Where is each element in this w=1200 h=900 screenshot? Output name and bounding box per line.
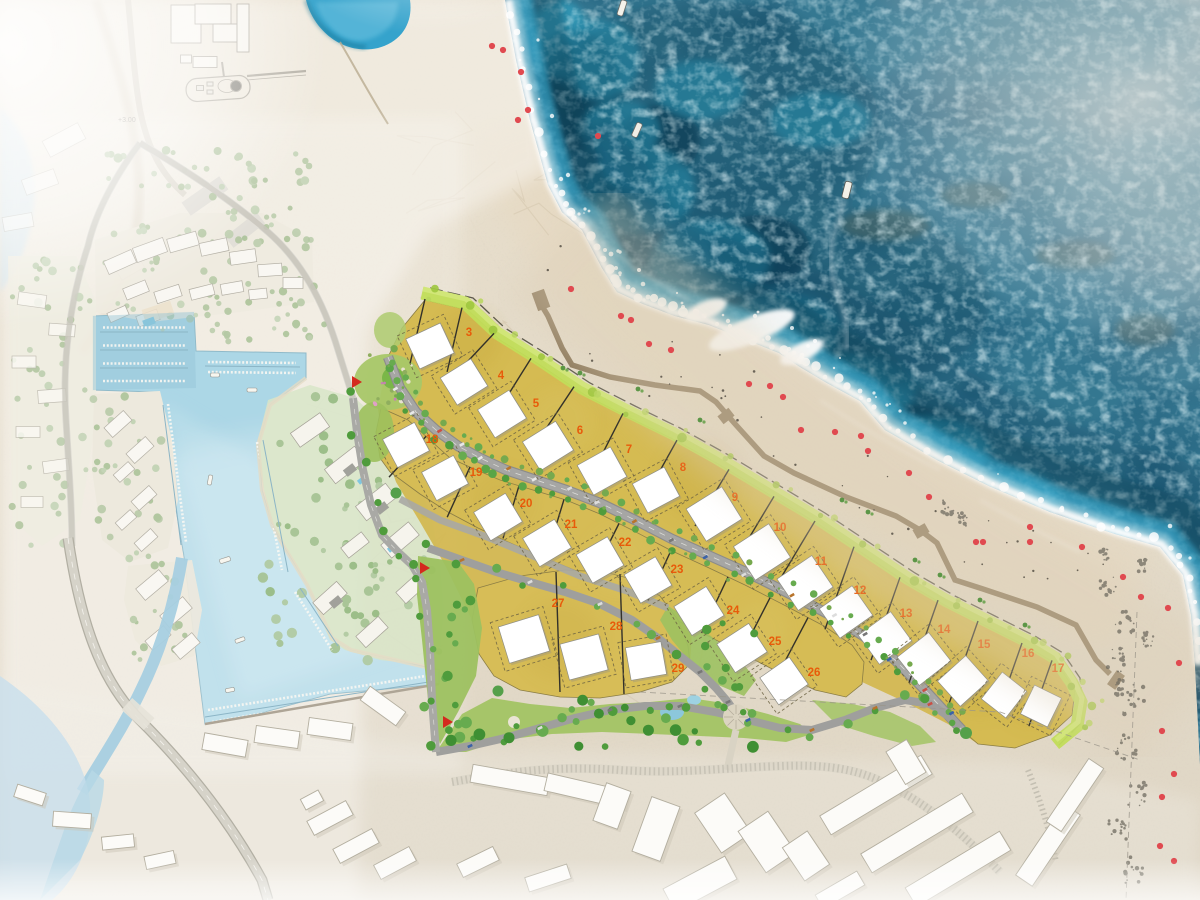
svg-text:18: 18 — [426, 434, 439, 446]
svg-text:8: 8 — [680, 462, 687, 474]
svg-text:22: 22 — [619, 537, 632, 549]
svg-text:23: 23 — [671, 564, 684, 576]
svg-text:5: 5 — [533, 398, 540, 410]
svg-text:7: 7 — [626, 444, 632, 456]
svg-text:19: 19 — [470, 467, 483, 479]
svg-text:28: 28 — [610, 621, 623, 633]
svg-text:21: 21 — [565, 519, 578, 531]
svg-text:4: 4 — [498, 370, 505, 382]
svg-text:24: 24 — [727, 605, 740, 617]
svg-text:29: 29 — [672, 663, 685, 675]
svg-text:3: 3 — [466, 327, 472, 339]
svg-text:26: 26 — [808, 667, 821, 679]
svg-text:6: 6 — [577, 425, 583, 437]
svg-text:27: 27 — [552, 598, 565, 610]
svg-text:25: 25 — [769, 636, 782, 648]
svg-text:20: 20 — [520, 498, 533, 510]
